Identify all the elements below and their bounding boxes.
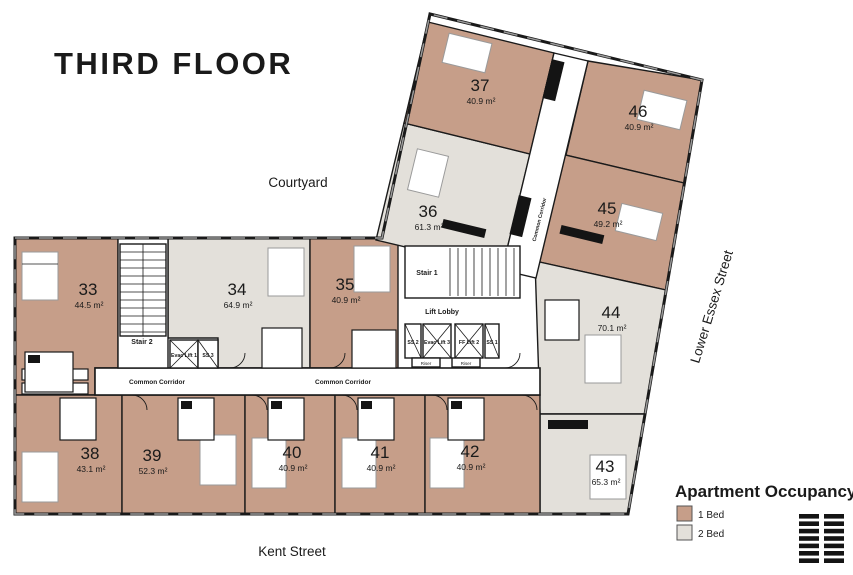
apt-37-number: 37 — [471, 76, 490, 95]
legend-label-2bed: 2 Bed — [698, 529, 724, 540]
bath-fixture-icon — [181, 401, 192, 409]
stair-2-label: Stair 2 — [131, 339, 153, 346]
bath-fixture-icon — [28, 355, 40, 363]
bath-fixture-icon — [271, 401, 282, 409]
apt-45-area: 49.2 m² — [594, 219, 623, 229]
apt-44-number: 44 — [602, 303, 621, 322]
apt-43-area: 65.3 m² — [592, 477, 621, 487]
apt-39-number: 39 — [143, 446, 162, 465]
apt-45-number: 45 — [598, 199, 617, 218]
bed-icon — [22, 252, 58, 300]
apt-37-area: 40.9 m² — [467, 96, 496, 106]
lift-lobby-label: Lift Lobby — [425, 309, 459, 316]
apt-38-number: 38 — [81, 444, 100, 463]
ss-3-label: SS 3 — [202, 353, 213, 359]
apt-35-number: 35 — [336, 275, 355, 294]
bath-pod — [262, 328, 302, 368]
apt-43-number: 43 — [596, 457, 615, 476]
lower-essex-street-label: Lower Essex Street — [687, 248, 736, 365]
bath-fixture-icon — [451, 401, 462, 409]
page-title: THIRD FLOOR — [54, 46, 293, 81]
floor-plan-page: 33 44.5 m² 34 64.9 m² 35 40.9 m² 36 61.3… — [0, 0, 853, 575]
apt-42-number: 42 — [461, 442, 480, 461]
ss-2-label: SS 2 — [407, 340, 418, 346]
apt-46-number: 46 — [629, 102, 648, 121]
apt-38-area: 43.1 m² — [77, 464, 106, 474]
riser-label: Riser — [461, 361, 472, 366]
kent-street-label: Kent Street — [258, 544, 326, 559]
bed-icon — [268, 248, 304, 296]
evac-lift-3-label: Evac Lift 3 — [424, 340, 450, 346]
courtyard-label: Courtyard — [268, 175, 327, 190]
apt-44-area: 70.1 m² — [598, 323, 627, 333]
bath-pod — [60, 398, 96, 440]
logo-bars-icon — [799, 514, 844, 563]
apt-33-number: 33 — [79, 280, 98, 299]
apt-34-area: 64.9 m² — [224, 300, 253, 310]
bath-pod — [352, 330, 396, 368]
evac-lift-1-label: Evac Lift 1 — [171, 353, 197, 359]
riser-label: Riser — [421, 361, 432, 366]
legend-swatch-1bed — [677, 506, 692, 521]
common-corridor-label: Common Corridor — [315, 379, 371, 386]
apt-41-area: 40.9 m² — [367, 463, 396, 473]
legend-swatch-2bed — [677, 525, 692, 540]
apt-40-number: 40 — [283, 443, 302, 462]
kitchen-counter — [548, 420, 588, 429]
apt-35-area: 40.9 m² — [332, 295, 361, 305]
door-arc — [505, 353, 520, 368]
ff-lift-2-label: FF Lift 2 — [459, 340, 479, 346]
apt-34-number: 34 — [228, 280, 247, 299]
bed-icon — [585, 335, 621, 383]
legend-title: Apartment Occupancy — [675, 482, 853, 501]
bed-icon — [354, 246, 390, 292]
ss-1-label: SS 1 — [486, 340, 497, 346]
bed-icon — [200, 435, 236, 485]
apt-42-area: 40.9 m² — [457, 462, 486, 472]
bed-icon — [22, 452, 58, 502]
bath-pod — [545, 300, 579, 340]
apt-46-area: 40.9 m² — [625, 122, 654, 132]
apt-36-number: 36 — [419, 202, 438, 221]
legend-label-1bed: 1 Bed — [698, 510, 724, 521]
apt-41-number: 41 — [371, 443, 390, 462]
bath-fixture-icon — [361, 401, 372, 409]
apt-36-area: 61.3 m² — [415, 222, 444, 232]
apt-40-area: 40.9 m² — [279, 463, 308, 473]
apt-39-area: 52.3 m² — [139, 466, 168, 476]
floor-plan-canvas: 33 44.5 m² 34 64.9 m² 35 40.9 m² 36 61.3… — [0, 0, 853, 575]
apt-33-area: 44.5 m² — [75, 300, 104, 310]
common-corridor-label: Common Corridor — [129, 379, 185, 386]
stair-1-label: Stair 1 — [416, 270, 438, 277]
